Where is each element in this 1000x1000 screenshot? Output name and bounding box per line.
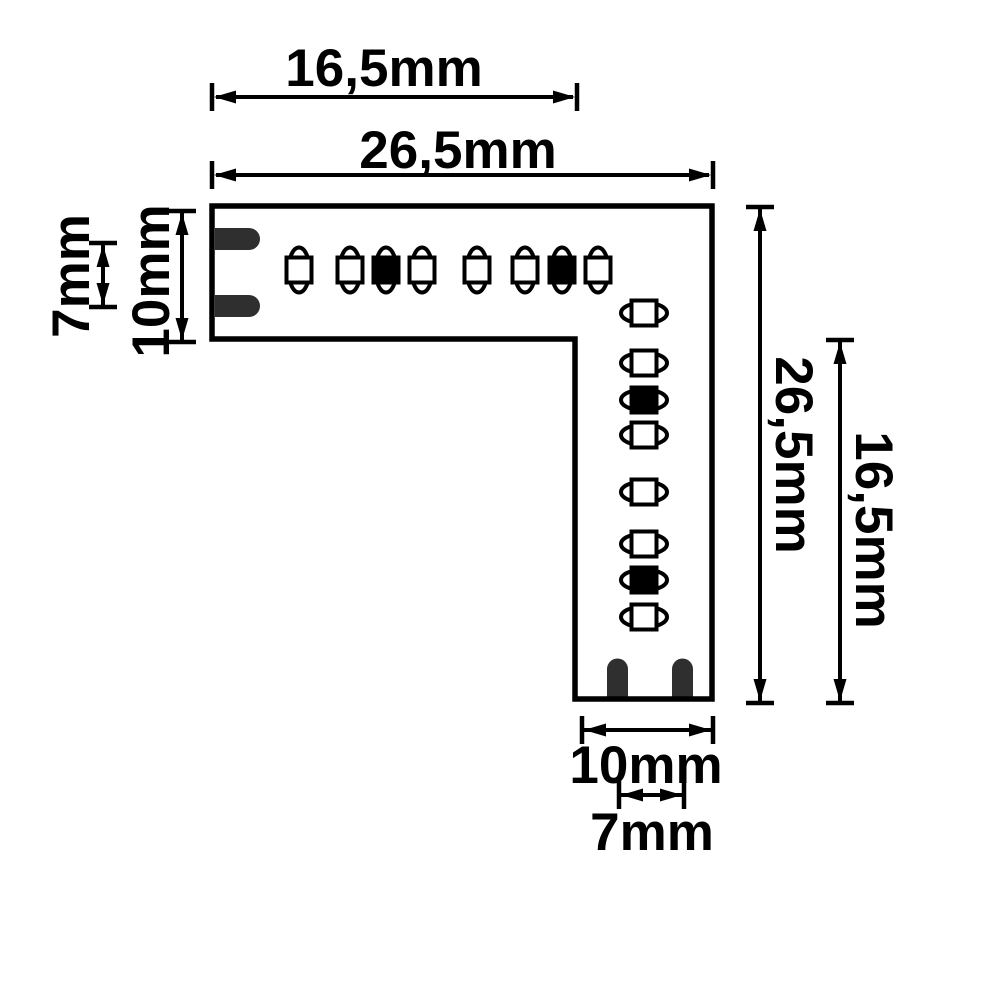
led-chip [513,248,538,293]
dimension-right-full: 26,5mm [746,207,823,703]
led-chip [621,351,667,376]
arrow-up-icon [834,342,847,364]
dimension-label: 7mm [42,214,101,338]
dimension-label: 16,5mm [285,39,482,98]
dimension-label: 7mm [590,803,714,862]
dimension-label: 10mm [122,204,181,357]
led-chip-marked [550,248,575,293]
arrow-left-icon [214,169,236,182]
dimension-label: 10mm [569,736,722,795]
led-chip [621,423,667,448]
solder-pad-left-bottom [215,295,260,317]
arrow-right-icon [553,91,575,104]
led-chip [287,248,312,293]
led-row-horizontal [287,248,611,293]
arrow-up-icon [754,209,767,231]
dimension-label: 26,5mm [764,356,823,553]
led-chip-marked [374,248,399,293]
dimension-right-inner: 16,5mm [826,340,903,703]
led-chip [410,248,435,293]
diagram-canvas: 16,5mm 26,5mm 7mm 10mm 26,5mm [0,0,1000,1000]
arrow-down-icon [754,679,767,701]
led-chip [621,605,667,630]
led-chip [465,248,490,293]
led-chip [338,248,363,293]
dimension-label: 16,5mm [844,431,903,628]
led-chip [621,480,667,505]
led-chip [621,532,667,557]
led-chip-marked [621,568,667,593]
arrow-right-icon [689,169,711,182]
solder-pad-bottom-left [607,659,628,699]
solder-pads [215,228,693,698]
dimension-top-inner: 16,5mm [212,39,577,111]
led-column-vertical [621,301,667,630]
arrow-down-icon [834,679,847,701]
solder-pad-bottom-right [672,659,693,699]
led-chip [586,248,611,293]
led-chip [621,301,667,326]
dimension-bottom-strip-width: 10mm [569,716,722,795]
solder-pad-left-top [215,228,260,250]
dimension-left-pad-pitch: 7mm [42,214,117,338]
led-corner-dimension-drawing: 16,5mm 26,5mm 7mm 10mm 26,5mm [0,0,1000,1000]
arrow-left-icon [584,724,606,737]
dimension-top-full: 26,5mm [212,121,713,189]
dimension-left-strip-width: 10mm [122,204,196,357]
arrow-right-icon [689,724,711,737]
dimension-label: 26,5mm [359,121,556,180]
led-chip-marked [621,388,667,413]
arrow-left-icon [214,91,236,104]
